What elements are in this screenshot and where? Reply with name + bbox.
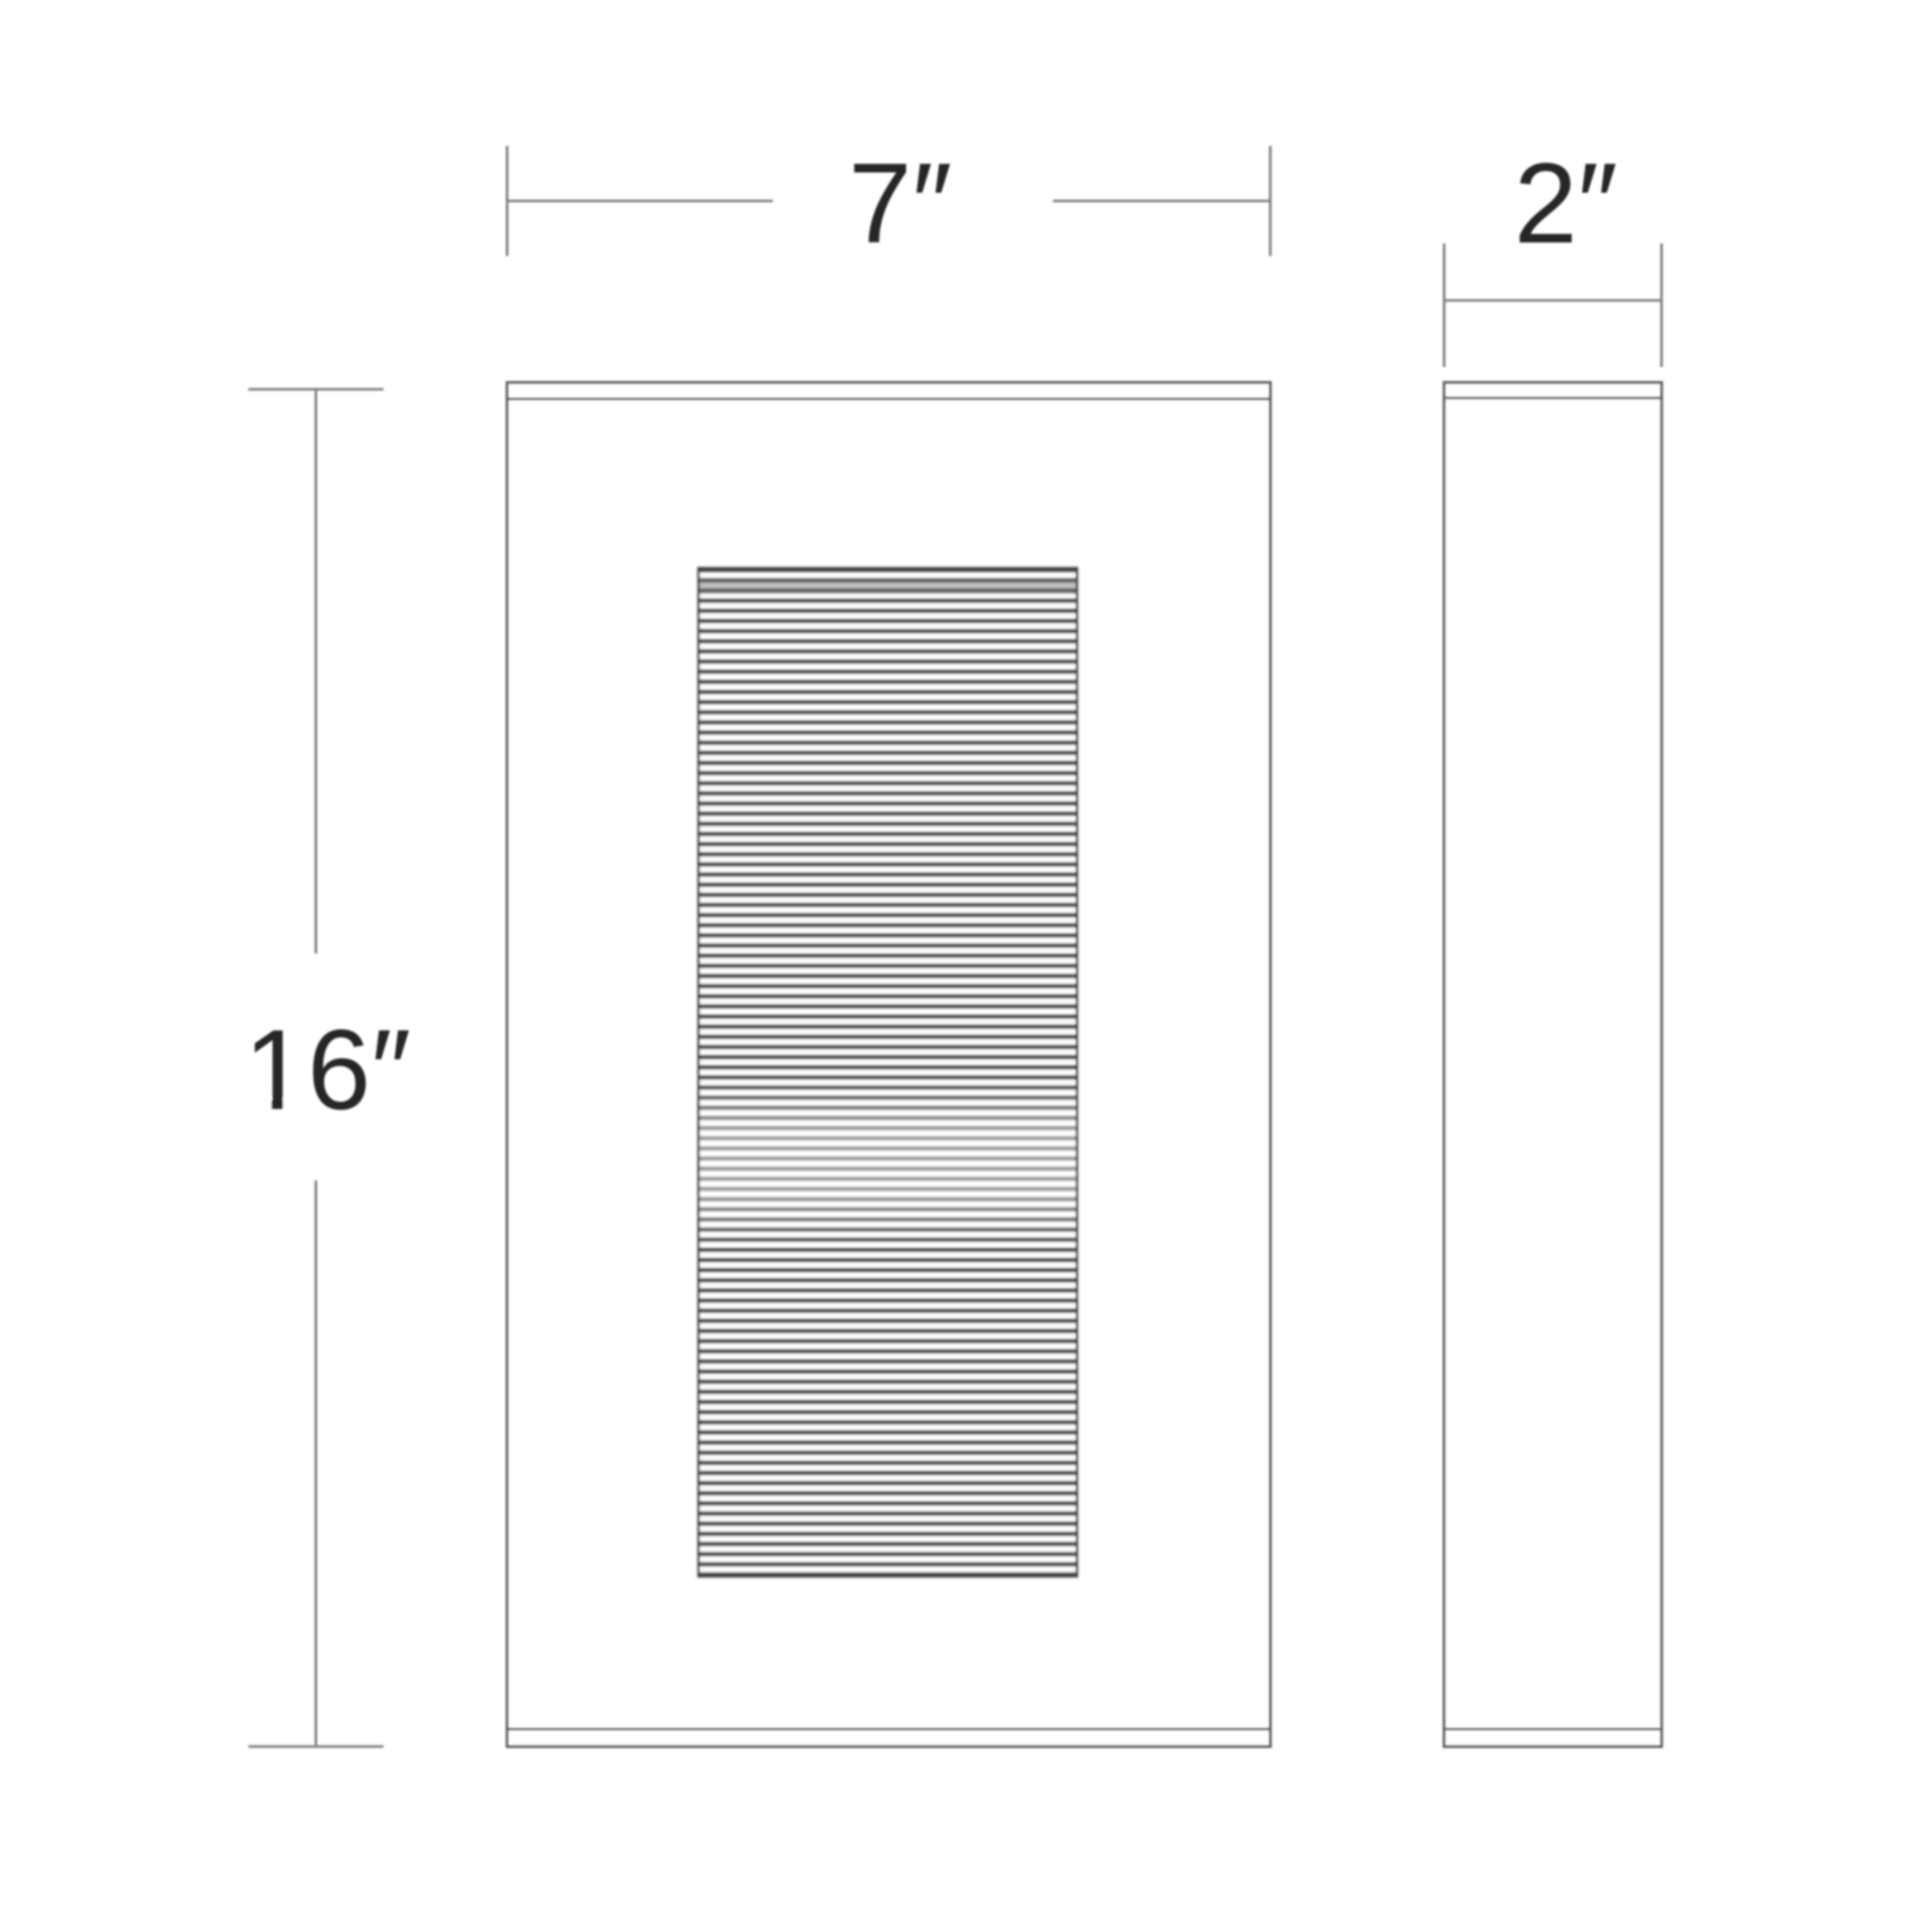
svg-text:2″: 2″: [1514, 140, 1617, 268]
svg-text:7″: 7″: [848, 140, 952, 268]
